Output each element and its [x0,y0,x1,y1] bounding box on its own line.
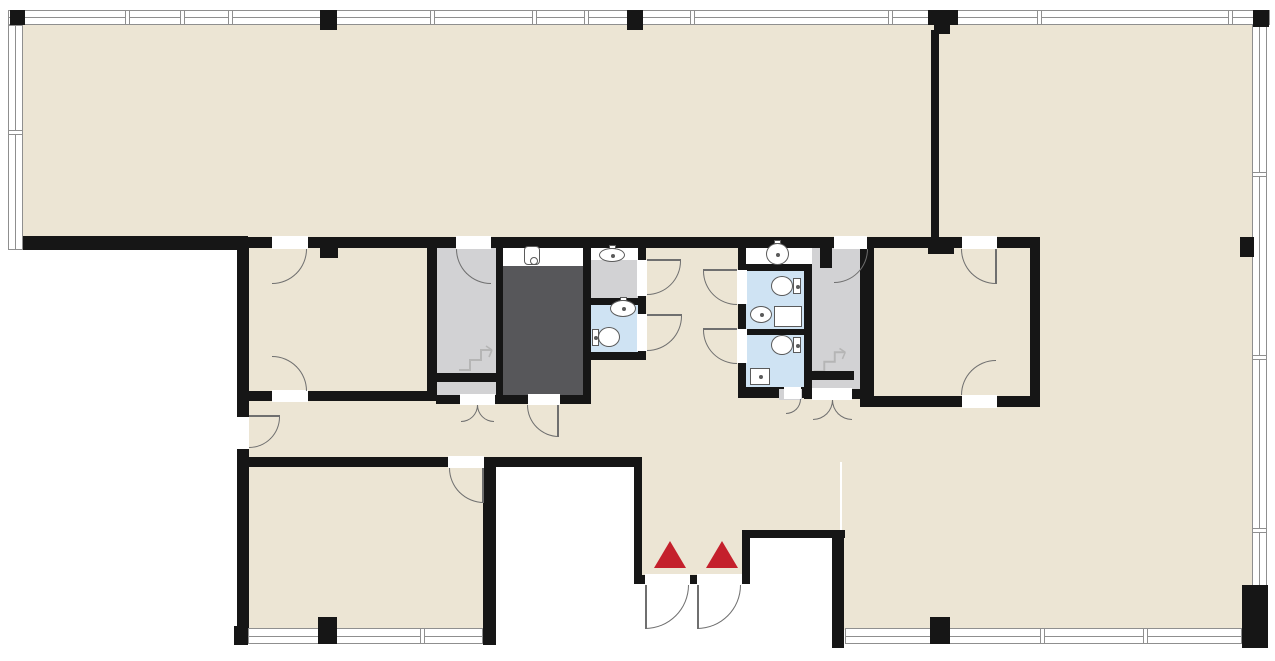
toilet-bowl-icon [598,327,620,347]
window-band-bottom-left [248,628,483,644]
wall [436,373,498,382]
window-mullion [888,11,893,24]
wall [583,352,646,360]
urinal-icon [524,246,540,265]
window-mullion [420,629,425,643]
window-mullion [430,11,435,24]
window-mullion [125,11,130,24]
door-opening [784,387,801,399]
column-corner-top-right [1253,10,1269,27]
wall [820,246,832,268]
room-southwest [240,462,490,634]
window-mullion [1253,528,1266,533]
window-mullion [180,11,185,24]
open-area-bottom-right [842,398,1242,630]
door-leaf [647,259,681,261]
column [627,10,643,30]
column-corner-bottom-right [1242,585,1268,648]
entrance-door-swing [645,585,689,629]
entrance-door-swing [697,585,741,629]
window-mullion [690,11,695,24]
floor-plan [0,0,1275,661]
wall [738,246,746,392]
column [934,22,950,34]
door-opening [962,395,997,408]
tap-icon [620,297,627,301]
door-leaf [703,269,737,271]
door-opening [737,270,747,304]
column [320,248,338,258]
open-area-above-notch [745,398,840,532]
toilet-bowl-icon [771,335,793,355]
wash-basin-icon [750,368,770,385]
window-mullion [1040,629,1045,643]
door-opening [237,417,249,449]
door-opening [645,574,690,585]
door-leaf [482,468,484,503]
wash-basin-icon [766,243,789,265]
window-band-right [1252,25,1267,587]
wall [860,396,1040,407]
door-opening [812,388,852,400]
column-corner-top-left [10,10,25,25]
window-mullion [1228,11,1233,24]
wall-notch-right [832,530,844,648]
door-leaf [995,249,997,284]
door-leaf [249,415,280,417]
wall-notch-top [742,530,845,538]
window-mullion [532,11,537,24]
door-opening [448,456,484,468]
wall [583,246,591,396]
tap-icon [774,240,781,244]
door-opening [460,394,495,405]
wall [237,391,437,401]
stair-flight-icon [455,336,497,374]
door-opening [637,260,647,296]
window-mullion [1253,172,1266,177]
service-shaft [501,266,585,396]
door-opening [697,574,742,585]
window-mullion [9,130,22,135]
column [318,617,337,644]
wall [746,329,806,335]
toilet-bowl-icon [771,276,793,296]
wall [860,246,874,398]
column-corner-bottom-left [234,626,248,645]
door-leaf [647,314,682,316]
wall [483,457,496,645]
wash-basin-icon [599,248,625,262]
wall-main-south [237,457,642,467]
wall [746,264,812,271]
door-opening [637,314,647,351]
door-leaf [703,328,737,330]
entrance-door-leaf [697,585,699,629]
column [930,617,950,644]
column [320,10,337,30]
door-opening [456,236,491,249]
wall-divider-top [931,30,939,240]
window-mullion [1143,629,1148,643]
window-mullion [1253,355,1266,360]
wall [1030,237,1040,407]
shower-room-mid [590,260,640,300]
window-mullion [1037,11,1042,24]
column [1240,237,1254,257]
door-opening [272,236,308,249]
wash-basin-icon [610,300,636,317]
wall [810,371,854,380]
door-opening [737,329,747,363]
wall [8,236,248,250]
entrance-door-leaf [645,585,647,629]
door-opening [528,394,560,405]
window-mullion [228,11,233,24]
vanity-counter [774,306,802,327]
tap-icon [609,245,616,249]
door-opening [962,236,997,249]
wall-vestibule-left [634,457,642,583]
window-band-left [8,25,23,250]
entrance-marker-triangle [706,541,738,568]
toilet-tank-icon [793,278,801,294]
door-opening [834,236,867,249]
entrance-marker-triangle [654,541,686,568]
wash-basin-icon [750,306,772,323]
toilet-tank-icon [793,337,801,353]
door-leaf [557,405,559,437]
window-mullion [584,11,589,24]
door-opening [272,390,308,402]
service-nook-west [501,246,585,268]
